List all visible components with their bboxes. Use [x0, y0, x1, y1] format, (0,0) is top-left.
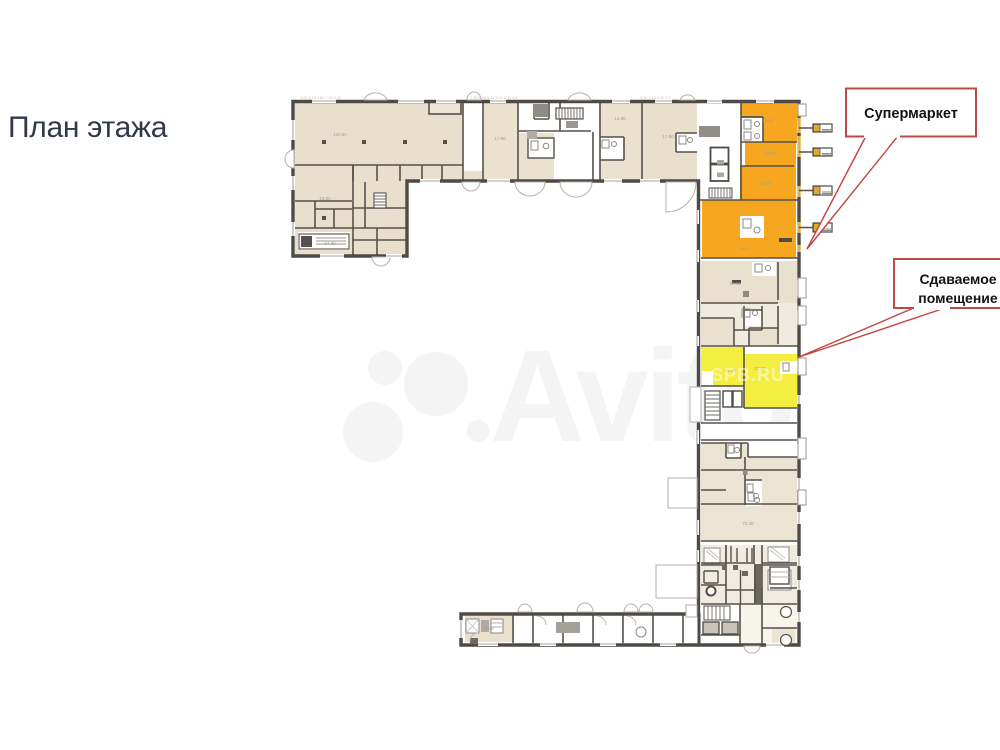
svg-text:15.84: 15.84 [762, 118, 774, 123]
svg-text:20.16: 20.16 [764, 151, 776, 156]
svg-text:26.67: 26.67 [760, 181, 772, 186]
svg-text:3.30 2.15 6.40 5.2: 3.30 2.15 6.40 5.2 [640, 96, 671, 100]
svg-text:Сдаваемое: Сдаваемое [919, 271, 996, 287]
svg-text:SPB.RU: SPB.RU [711, 365, 785, 385]
svg-text:23.70: 23.70 [482, 626, 494, 631]
svg-text:23.80: 23.80 [319, 196, 331, 201]
svg-text:14.30: 14.30 [324, 241, 336, 246]
svg-text:3.20 4.15 3.80 2.90 4.10: 3.20 4.15 3.80 2.90 4.10 [300, 96, 341, 100]
svg-text:73.36: 73.36 [742, 521, 754, 526]
svg-text:33.94: 33.94 [729, 281, 741, 286]
svg-text:2.35 6.18 4.15 3.12 5.30: 2.35 6.18 4.15 3.12 5.30 4.4 [470, 96, 518, 100]
svg-text:126.80: 126.80 [333, 132, 347, 137]
svg-text:56.1: 56.1 [741, 246, 750, 251]
svg-text:Супермаркет: Супермаркет [864, 106, 958, 122]
svg-text:помещение: помещение [918, 290, 998, 306]
svg-text:17.90: 17.90 [662, 134, 674, 139]
svg-text:14.60: 14.60 [614, 116, 626, 121]
svg-text:17.90: 17.90 [494, 136, 506, 141]
